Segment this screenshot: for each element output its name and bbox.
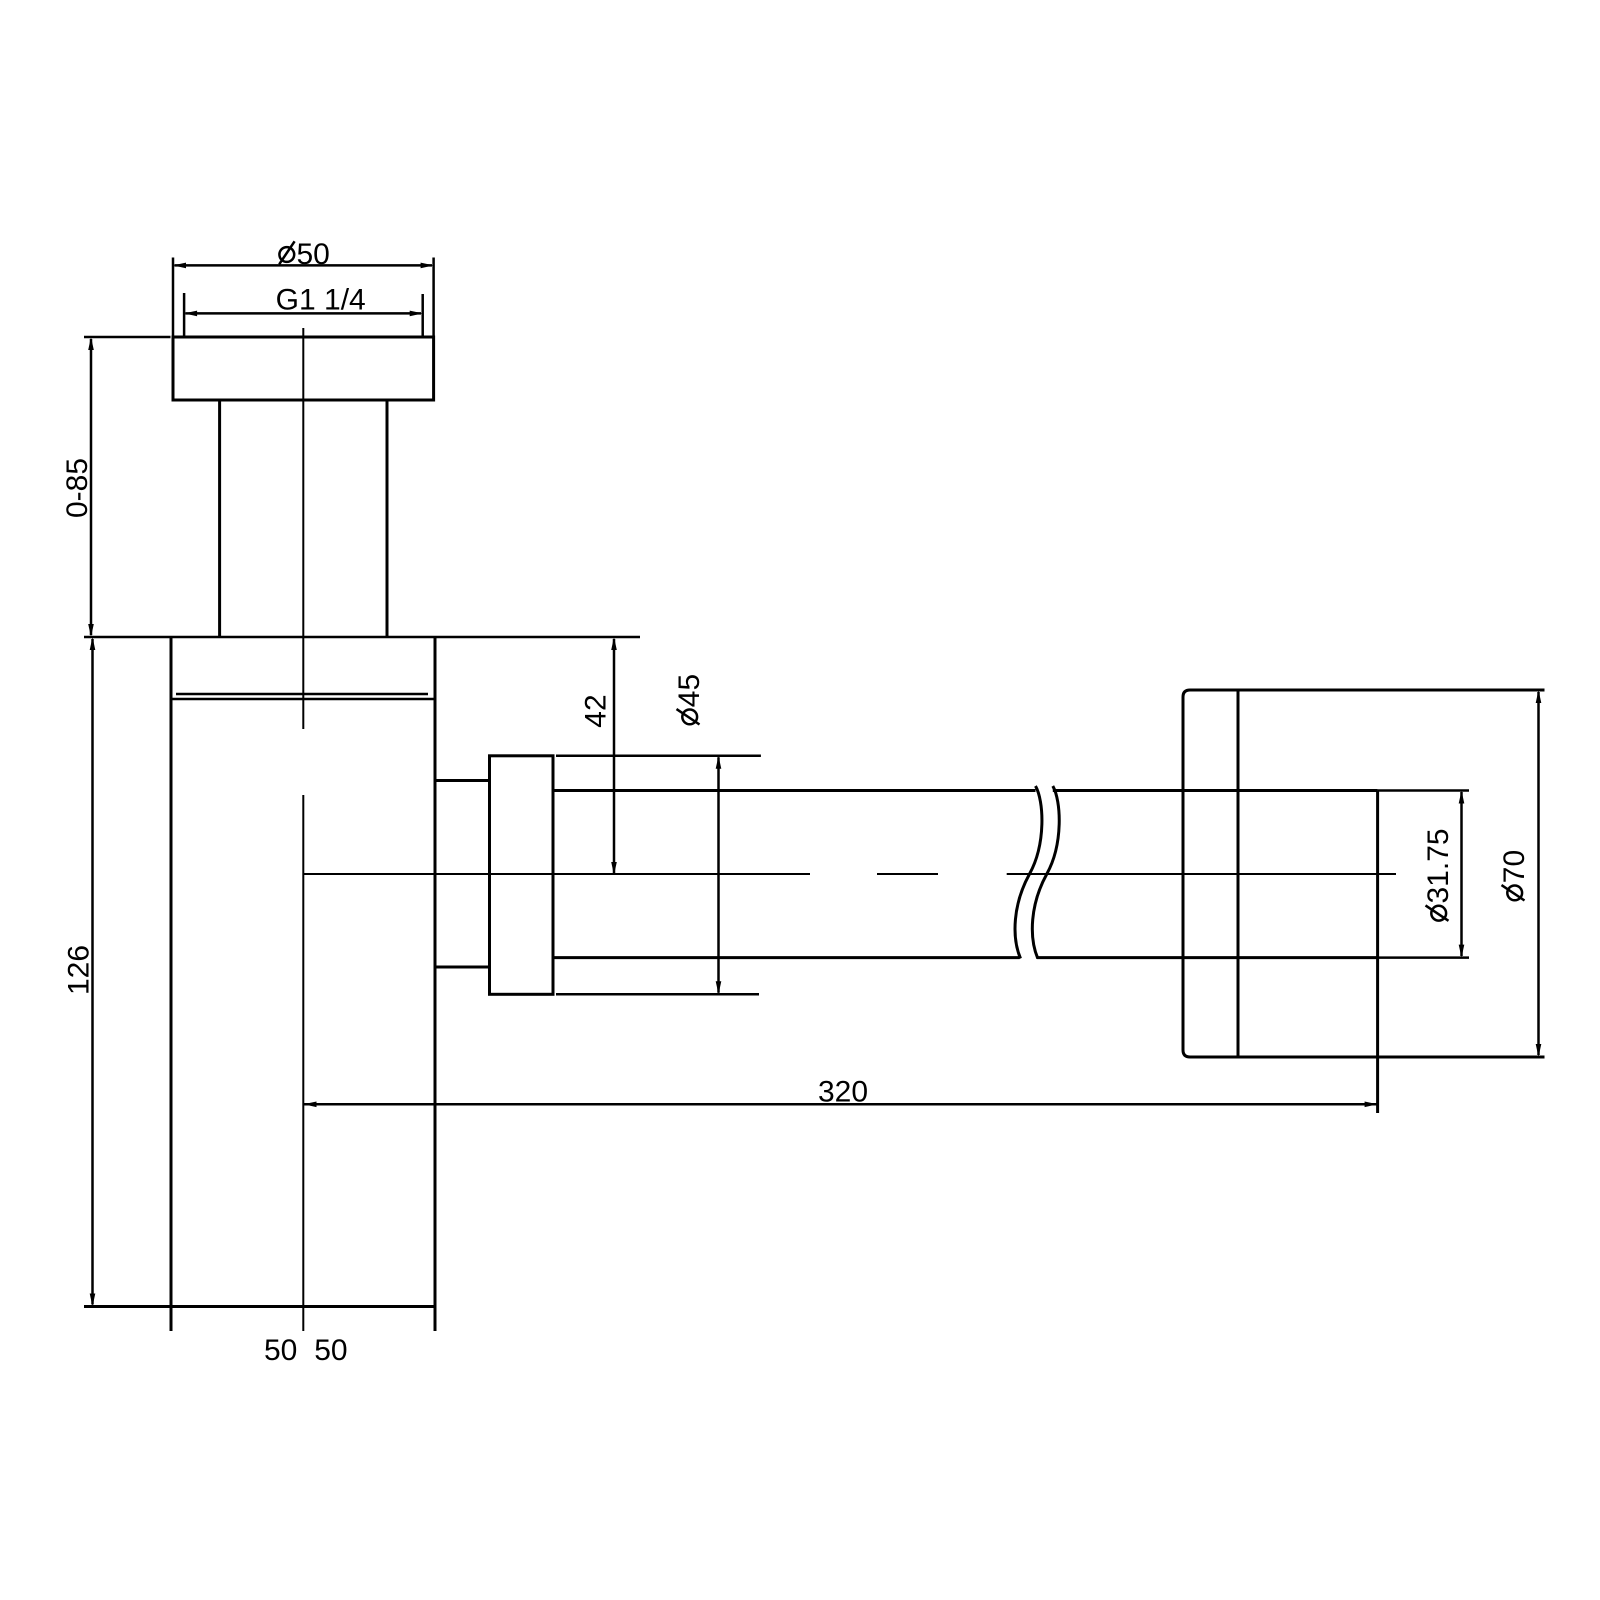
svg-text:50: 50 (264, 1334, 297, 1367)
svg-text:31.75: 31.75 (1422, 828, 1455, 903)
svg-text:70: 70 (1498, 850, 1531, 883)
svg-text:320: 320 (818, 1076, 868, 1109)
svg-text:50: 50 (314, 1334, 347, 1367)
svg-text:0-85: 0-85 (61, 458, 94, 518)
svg-text:42: 42 (579, 694, 612, 727)
svg-text:45: 45 (673, 674, 706, 707)
svg-text:50: 50 (297, 238, 330, 271)
svg-text:126: 126 (62, 945, 95, 995)
svg-text:G1 1/4: G1 1/4 (276, 283, 366, 316)
